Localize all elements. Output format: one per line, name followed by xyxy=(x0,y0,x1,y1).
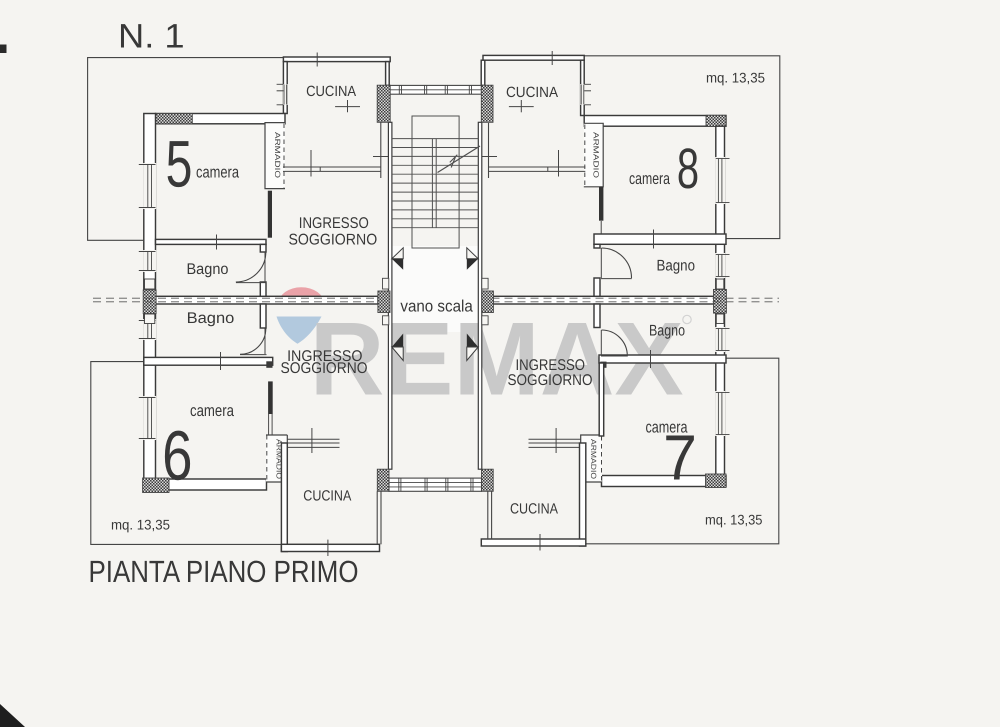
svg-text:CUCINA: CUCINA xyxy=(306,84,356,100)
svg-text:camera: camera xyxy=(190,402,235,420)
svg-text:PIANTA PIANO PRIMO: PIANTA PIANO PRIMO xyxy=(89,554,359,589)
svg-text:mq. 13,35: mq. 13,35 xyxy=(706,70,765,86)
svg-text:8: 8 xyxy=(677,137,699,201)
svg-text:5: 5 xyxy=(166,127,193,201)
svg-text:ARMADIO: ARMADIO xyxy=(273,132,282,178)
svg-text:CUCINA: CUCINA xyxy=(510,502,558,518)
svg-text:camera: camera xyxy=(629,170,671,188)
svg-text:ARMADIO: ARMADIO xyxy=(589,439,598,479)
svg-text:SOGGIORNO: SOGGIORNO xyxy=(281,360,368,377)
svg-text:SOGGIORNO: SOGGIORNO xyxy=(508,372,593,389)
svg-text:vano scala: vano scala xyxy=(400,297,473,315)
svg-text:mq. 13,35: mq. 13,35 xyxy=(111,517,170,533)
svg-text:INGRESSO: INGRESSO xyxy=(299,215,369,232)
svg-text:camera: camera xyxy=(196,164,240,182)
svg-text:CUCINA: CUCINA xyxy=(506,85,558,101)
svg-text:6: 6 xyxy=(162,417,192,495)
svg-text:CUCINA: CUCINA xyxy=(303,489,351,505)
svg-text:Bagno: Bagno xyxy=(187,261,229,278)
svg-text:camera: camera xyxy=(646,419,689,437)
svg-text:ARMADIO: ARMADIO xyxy=(592,132,601,178)
svg-text:SOGGIORNO: SOGGIORNO xyxy=(289,231,378,248)
svg-text:Bagno: Bagno xyxy=(187,310,235,327)
svg-text:Bagno: Bagno xyxy=(649,323,685,340)
svg-text:mq. 13,35: mq. 13,35 xyxy=(705,512,763,528)
svg-text:N. 1: N. 1 xyxy=(118,18,185,56)
svg-text:Bagno: Bagno xyxy=(657,258,696,275)
svg-text:ARMADIO: ARMADIO xyxy=(275,439,284,479)
